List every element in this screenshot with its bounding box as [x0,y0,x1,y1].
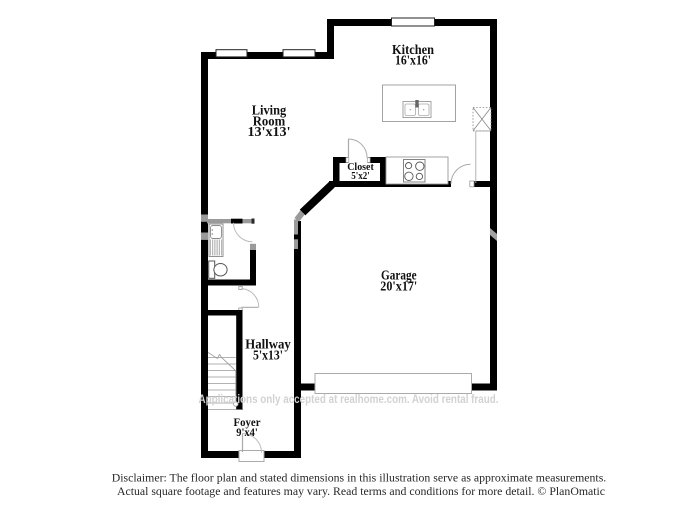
svg-text:Actual square footage and feat: Actual square footage and features may v… [117,484,605,498]
svg-text:20'x17': 20'x17' [380,279,417,294]
svg-text:13'x13': 13'x13' [248,125,291,140]
svg-text:5'x13': 5'x13' [253,348,283,363]
svg-text:Applications only accepted at: Applications only accepted at realhome.c… [199,394,499,406]
svg-text:9'x4': 9'x4' [236,425,258,439]
svg-text:5'x2': 5'x2' [351,170,370,182]
svg-text:16'x16': 16'x16' [395,54,431,69]
svg-text:Disclaimer: The floor plan and: Disclaimer: The floor plan and stated di… [112,471,607,485]
